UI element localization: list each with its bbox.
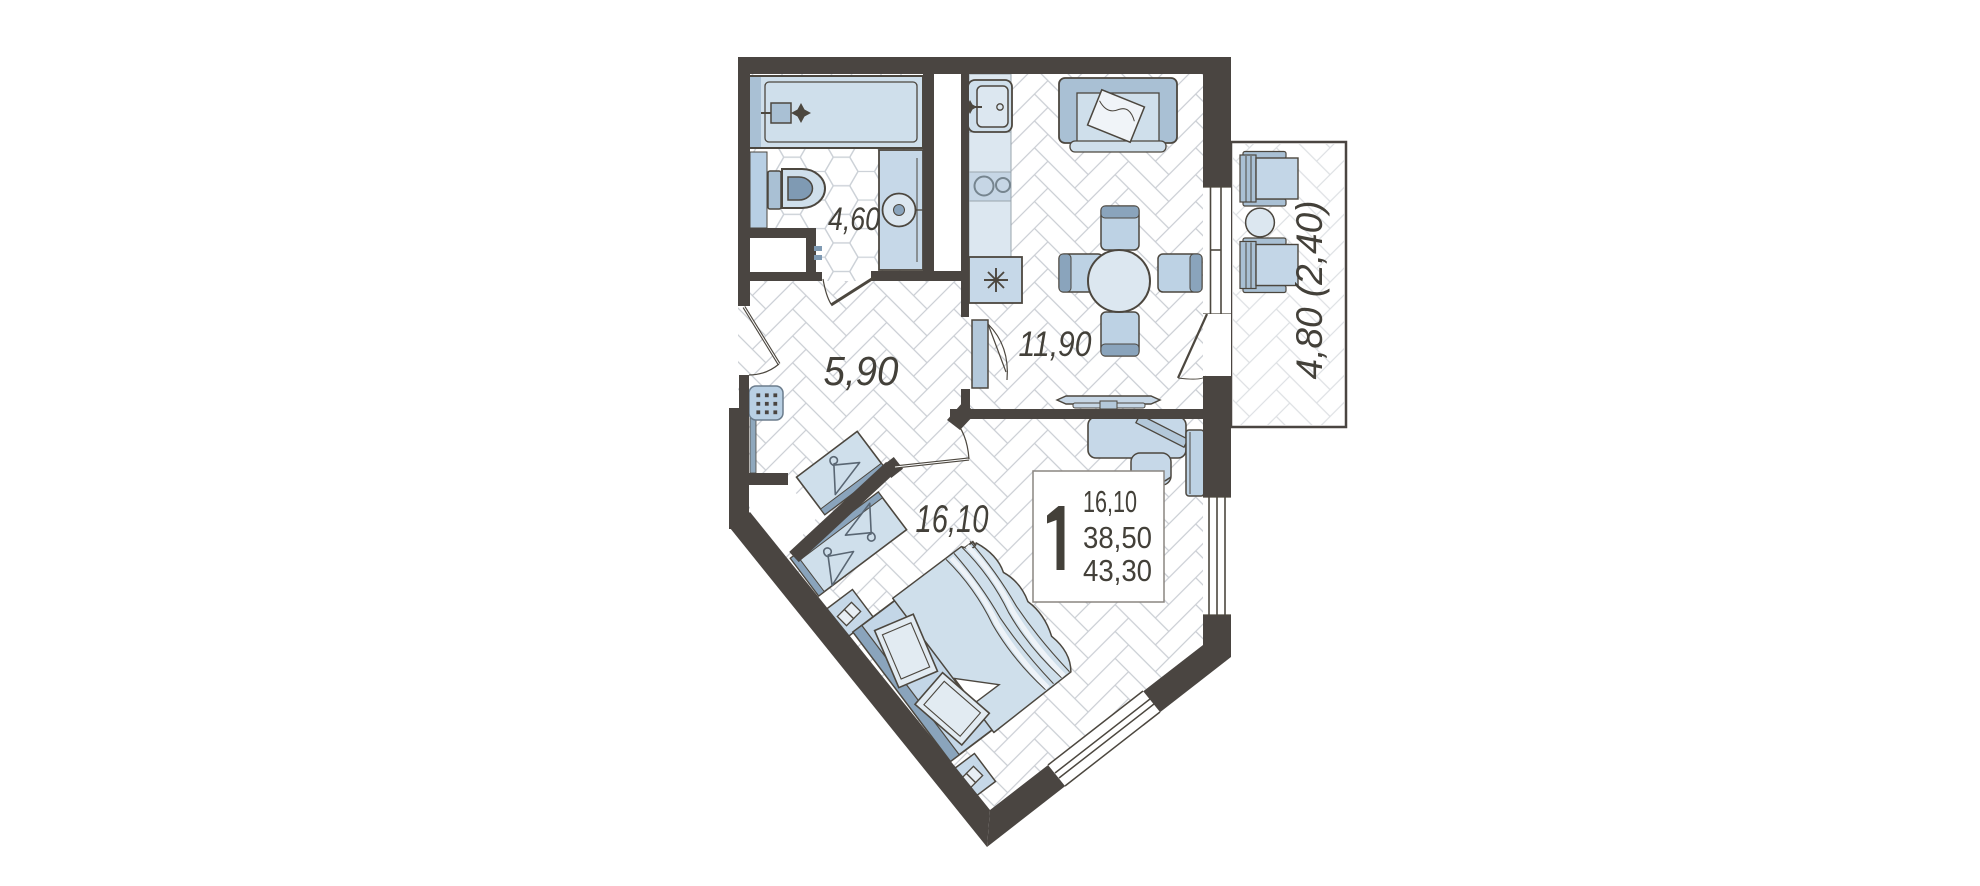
svg-text:16,10: 16,10 [1083, 484, 1137, 519]
svg-text:5,90: 5,90 [824, 348, 899, 394]
svg-text:4,60: 4,60 [828, 201, 880, 237]
svg-text:11,90: 11,90 [1019, 325, 1092, 364]
svg-text:16,10: 16,10 [916, 498, 989, 541]
svg-text:43,30: 43,30 [1083, 553, 1152, 588]
svg-text:38,50: 38,50 [1083, 520, 1152, 555]
svg-text:4,80 (2,40): 4,80 (2,40) [1289, 201, 1330, 380]
